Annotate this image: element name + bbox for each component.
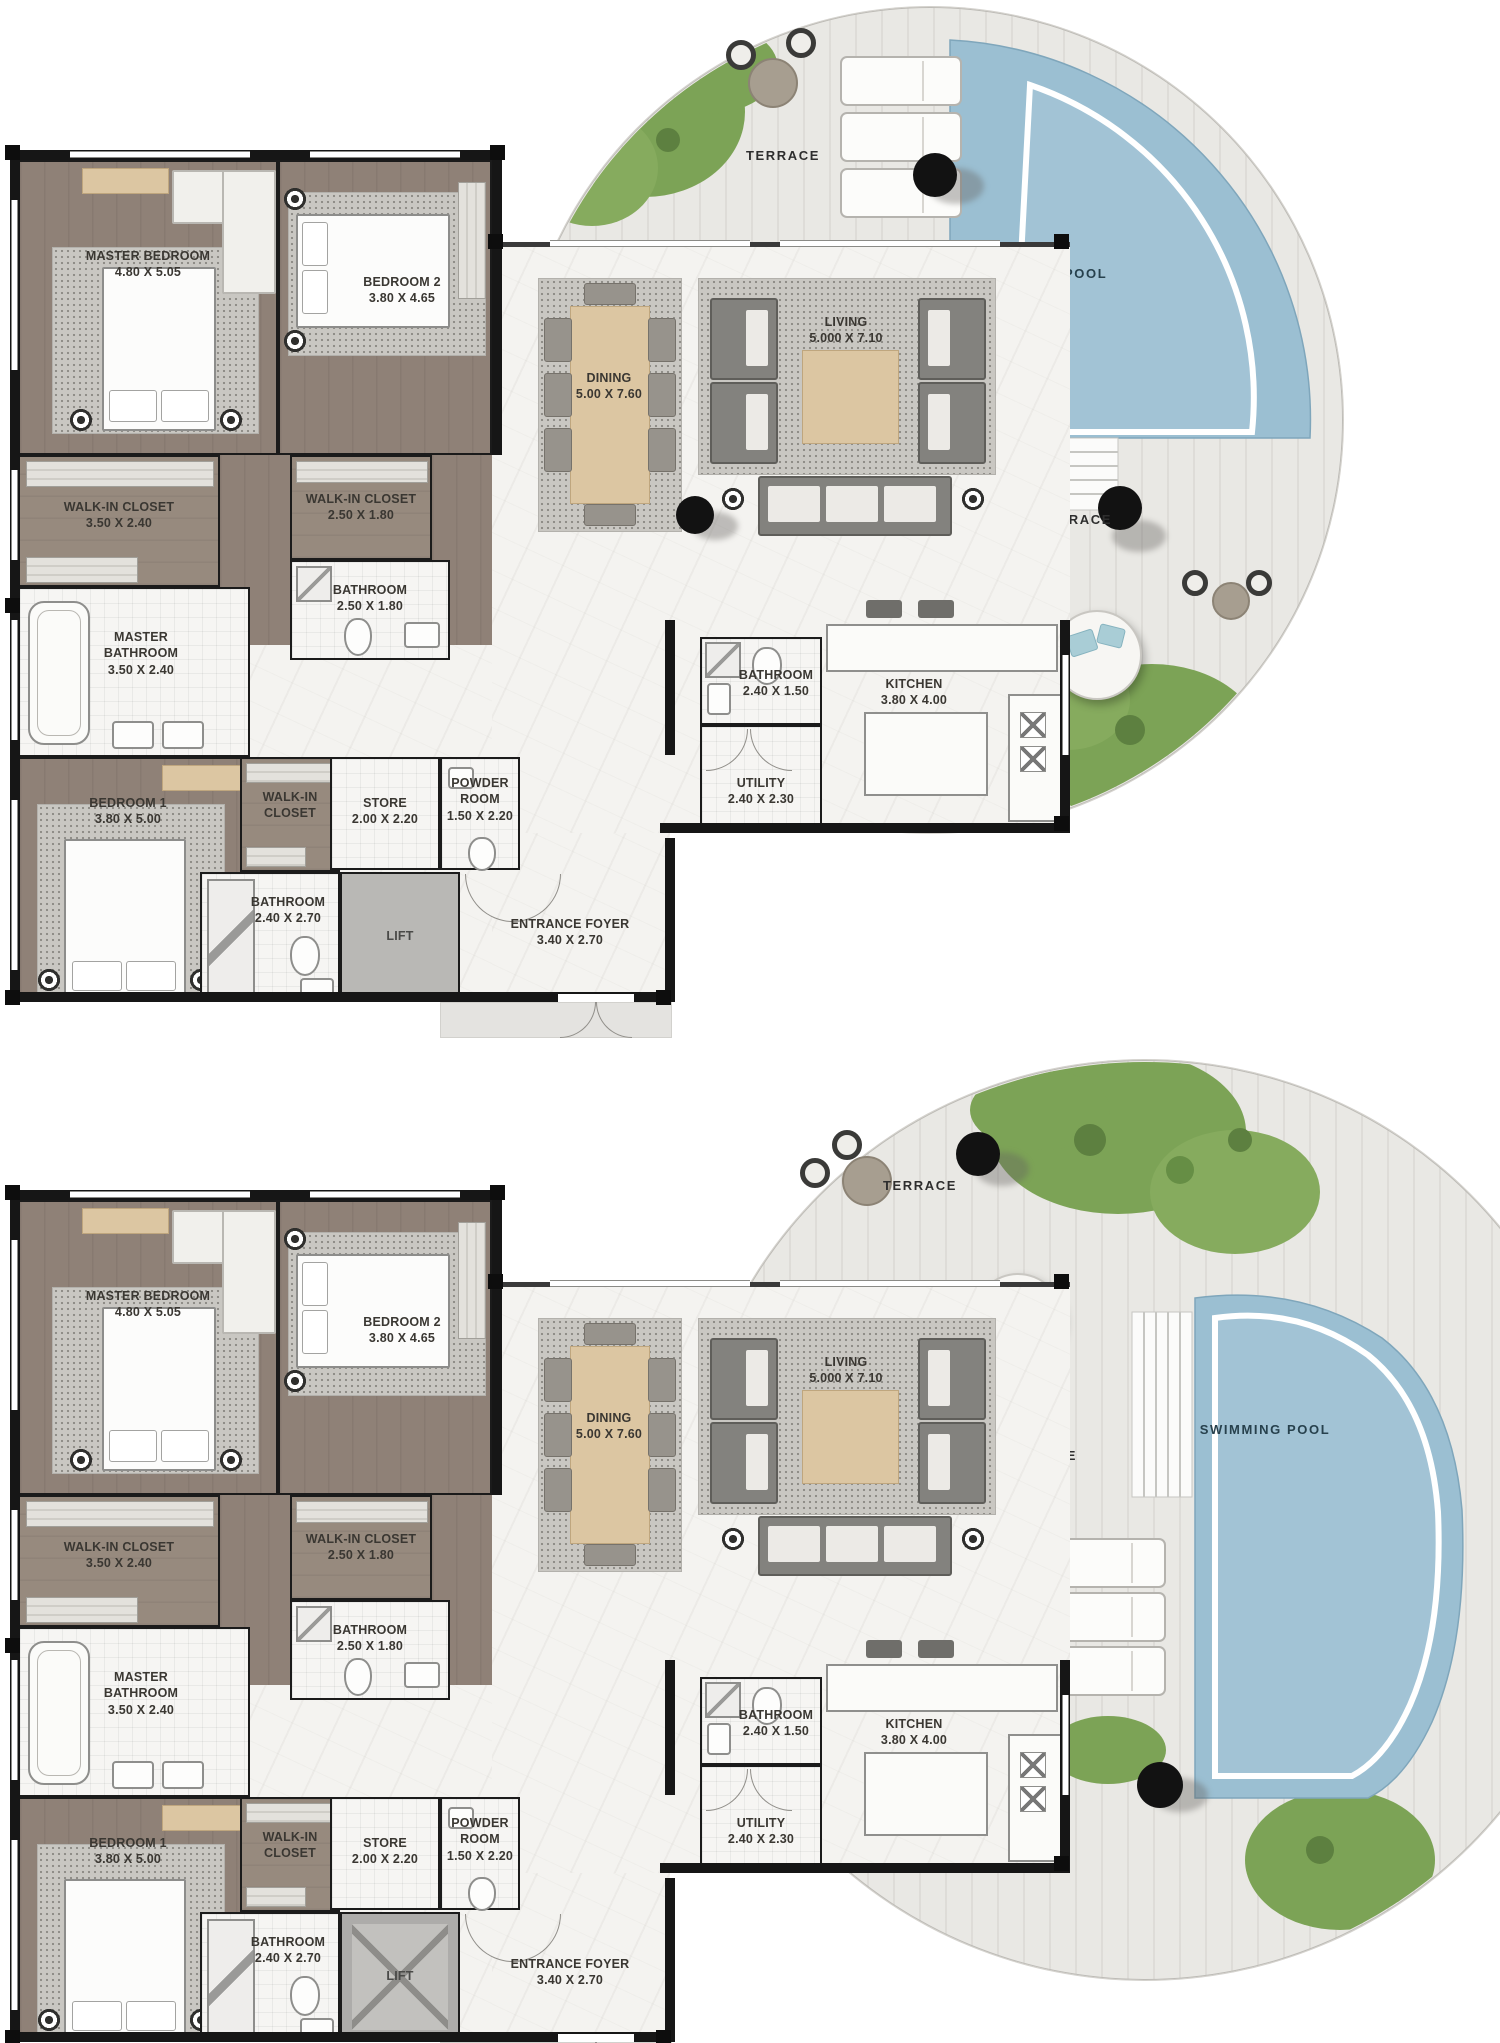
side-table (36, 967, 62, 993)
door-swing (465, 1914, 513, 1962)
room-label: BATHROOM 2.50 X 1.80 (294, 1622, 446, 1655)
bed-pillow (109, 390, 157, 422)
wall-jamb (1054, 816, 1069, 831)
side-table (720, 486, 746, 512)
room-name: ENTRANCE FOYER (478, 916, 662, 932)
room-dims: 3.50 X 2.40 (22, 1555, 216, 1571)
wall (660, 1863, 1070, 1873)
room-name: BATHROOM (240, 894, 336, 910)
room-name: DINING (540, 370, 678, 386)
room-name: WALK-IN CLOSET (294, 1531, 428, 1547)
door-swing (706, 729, 748, 771)
bar-stool (866, 600, 902, 618)
closet-shelf (26, 1597, 138, 1623)
side-table (68, 407, 94, 433)
kitchen-counter (826, 624, 1058, 672)
sink (404, 622, 440, 648)
room-label: BATHROOM 2.40 X 2.70 (240, 1934, 336, 1967)
window (780, 1280, 1000, 1287)
room-name: KITCHEN (824, 1716, 1004, 1732)
sink (112, 721, 154, 749)
room-name: UTILITY (704, 1815, 818, 1831)
pool-steps (1132, 1312, 1192, 1497)
dining-table (570, 306, 650, 504)
dining-chair (544, 1468, 572, 1512)
room-dims: 2.40 X 2.70 (240, 1950, 336, 1966)
lift-room: LIFT (340, 872, 460, 1002)
entrance-door-gap (558, 2034, 634, 2042)
room-dims: 3.80 X 4.65 (320, 1330, 484, 1346)
living-area: LIVING 5.000 X 7.10 (698, 270, 994, 540)
bar-stool (918, 1640, 954, 1658)
room-label: UTILITY 2.40 X 2.30 (704, 775, 818, 808)
wall (665, 620, 675, 755)
bathroom-1: BATHROOM 2.40 X 2.70 (200, 1912, 340, 2042)
room-dims: 2.40 X 1.50 (734, 1723, 818, 1739)
room-name: WALK-IN CLOSET (22, 1539, 216, 1555)
room-name: DINING (540, 1410, 678, 1426)
armchair (710, 382, 778, 464)
room-label: STORE 2.00 X 2.20 (334, 1835, 436, 1868)
window (70, 1191, 250, 1198)
window (1062, 655, 1069, 755)
room-label: POWDER ROOM 1.50 X 2.20 (444, 1815, 516, 1864)
room-name: LIFT (344, 1968, 456, 1984)
side-table (36, 2007, 62, 2033)
room-name: BATHROOM (240, 1934, 336, 1950)
room-name: MASTER BATHROOM (78, 1669, 204, 1702)
window (11, 1510, 18, 1600)
room-label: LIVING 5.000 X 7.10 (700, 314, 992, 347)
room-name: WALK-IN CLOSET (22, 499, 216, 515)
sink (404, 1662, 440, 1688)
planter-pot (676, 496, 714, 534)
room-name: ENTRANCE FOYER (478, 1956, 662, 1972)
wall-jamb (5, 1185, 20, 1200)
side-table (960, 1526, 986, 1552)
bed-pillow (302, 222, 328, 266)
closet-shelf (246, 763, 336, 783)
bathroom-3: BATHROOM 2.40 X 1.50 (700, 637, 822, 725)
closet-shelf (26, 1501, 214, 1527)
room-label: BATHROOM 2.40 X 2.70 (240, 894, 336, 927)
closet-shelf (296, 1501, 428, 1523)
walk-in-closet-master: WALK-IN CLOSET 3.50 X 2.40 (18, 1495, 220, 1627)
room-label: MASTER BATHROOM 3.50 X 2.40 (78, 1669, 204, 1718)
bar-stool (866, 1640, 902, 1658)
terrace-table (1212, 582, 1250, 620)
toilet (468, 837, 496, 871)
planter-pot (1137, 1762, 1183, 1808)
room-label: BATHROOM 2.40 X 1.50 (734, 1707, 818, 1740)
room-dims: 3.40 X 2.70 (478, 932, 662, 948)
room-name: BEDROOM 1 (26, 795, 230, 811)
room-dims: 4.80 X 5.05 (22, 264, 274, 280)
room-label: DINING 5.00 X 7.60 (540, 370, 678, 403)
room-label: WALK-IN CLOSET 3.50 X 2.40 (22, 1539, 216, 1572)
wall-jamb (656, 2030, 671, 2043)
toilet (290, 936, 320, 976)
bed-pillow (161, 390, 209, 422)
floor-plan-lower: TERRACE TERRACE SWIMMING POOL (0, 1050, 1500, 2043)
room-label: BATHROOM 2.50 X 1.80 (294, 582, 446, 615)
room-dims: 2.40 X 2.30 (704, 791, 818, 807)
room-label: WALK-IN CLOSET 2.50 X 1.80 (294, 1531, 428, 1564)
room-label: WALK-IN CLOSET 3.50 X 2.40 (22, 499, 216, 532)
walk-in-closet-2: WALK-IN CLOSET 2.50 X 1.80 (290, 1495, 432, 1600)
room-label: DINING 5.00 X 7.60 (540, 1410, 678, 1443)
closet-shelf (26, 557, 138, 583)
kitchen-island (864, 712, 988, 796)
door-swing (465, 874, 513, 922)
wall-jamb (490, 145, 505, 160)
bathroom-3: BATHROOM 2.40 X 1.50 (700, 1677, 822, 1765)
dining-chair (544, 428, 572, 472)
room-name: UTILITY (704, 775, 818, 791)
window (11, 470, 18, 560)
room-label: ENTRANCE FOYER 3.40 X 2.70 (478, 916, 662, 949)
room-name: POWDER ROOM (444, 775, 516, 808)
wall-jamb (5, 1638, 20, 1653)
window (70, 151, 250, 158)
powder-room: POWDER ROOM 1.50 X 2.20 (440, 1797, 520, 1910)
kitchen: KITCHEN 3.80 X 4.00 (822, 620, 1070, 825)
side-table (68, 1447, 94, 1473)
dining-chair (648, 1358, 676, 1402)
sink (112, 1761, 154, 1789)
closet-shelf (246, 1887, 306, 1907)
store-room: STORE 2.00 X 2.20 (330, 1797, 440, 1910)
room-dims: 2.00 X 2.20 (334, 811, 436, 827)
room-dims: 5.000 X 7.10 (700, 330, 992, 346)
dining-chair (584, 1544, 636, 1566)
room-label: LIFT (344, 1968, 456, 1984)
room-name: STORE (334, 1835, 436, 1851)
walk-in-closet-1: WALK-IN CLOSET (240, 757, 340, 872)
wall-jamb (490, 1185, 505, 1200)
room-name: LIVING (700, 1354, 992, 1370)
wall-jamb (1054, 1274, 1069, 1289)
room-dims: 2.50 X 1.80 (294, 507, 428, 523)
dining-chair (648, 428, 676, 472)
bed-pillow (72, 961, 122, 991)
wall (492, 1190, 502, 1495)
floorplan-sheet: TERRACE SWIMMING POOL TERRACE (0, 0, 1500, 2043)
window (1062, 1695, 1069, 1795)
door-swing (750, 1769, 792, 1811)
sun-lounger (1058, 1646, 1166, 1696)
sink (162, 721, 204, 749)
wall (660, 823, 1070, 833)
terrace-chair (1246, 570, 1272, 596)
room-dims: 2.50 X 1.80 (294, 1638, 446, 1654)
hob (1020, 746, 1046, 772)
side-table (218, 407, 244, 433)
window (780, 240, 1000, 247)
side-table (720, 1526, 746, 1552)
room-dims: 5.000 X 7.10 (700, 1370, 992, 1386)
swimming-pool-label: SWIMMING POOL (1180, 1422, 1350, 1437)
room-dims: 3.80 X 4.00 (824, 692, 1004, 708)
room-dims: 1.50 X 2.20 (444, 808, 516, 824)
room-label: UTILITY 2.40 X 2.30 (704, 1815, 818, 1848)
room-dims: 3.50 X 2.40 (22, 515, 216, 531)
room-name: BATHROOM (294, 1622, 446, 1638)
room-name: MASTER BATHROOM (78, 629, 204, 662)
window (11, 1840, 18, 2010)
side-table (218, 1447, 244, 1473)
powder-room: POWDER ROOM 1.50 X 2.20 (440, 757, 520, 870)
wall (665, 838, 675, 1002)
room-label: POWDER ROOM 1.50 X 2.20 (444, 775, 516, 824)
room-label: BATHROOM 2.40 X 1.50 (734, 667, 818, 700)
room-name: BATHROOM (734, 1707, 818, 1723)
sun-lounger (840, 56, 962, 106)
room-dims: 3.50 X 2.40 (78, 1702, 204, 1718)
dining-area: DINING 5.00 X 7.60 (538, 1318, 680, 1570)
wall-jamb (5, 990, 20, 1005)
bedroom-bench (82, 1208, 169, 1234)
floor-plan-upper: TERRACE SWIMMING POOL TERRACE (0, 0, 1500, 1015)
wall-jamb (5, 2030, 20, 2043)
bed-pillow (109, 1430, 157, 1462)
planter-pot (956, 1132, 1000, 1176)
walk-in-closet-2: WALK-IN CLOSET 2.50 X 1.80 (290, 455, 432, 560)
dining-chair (584, 283, 636, 305)
window (310, 1191, 460, 1198)
armchair (918, 382, 986, 464)
dining-chair (584, 504, 636, 526)
bed-pillow (72, 2001, 122, 2031)
room-name: STORE (334, 795, 436, 811)
closet-shelf (246, 1803, 336, 1823)
room-dims: 3.40 X 2.70 (478, 1972, 662, 1988)
sofa (758, 476, 952, 536)
utility-room: UTILITY 2.40 X 2.30 (700, 725, 822, 825)
room-name: WALK-IN CLOSET (244, 789, 336, 822)
dining-chair (584, 1323, 636, 1345)
bedroom-2: BEDROOM 2 3.80 X 4.65 (278, 1200, 492, 1495)
room-label: STORE 2.00 X 2.20 (334, 795, 436, 828)
room-dims: 2.00 X 2.20 (334, 1851, 436, 1867)
window (550, 1280, 750, 1287)
room-label: ENTRANCE FOYER 3.40 X 2.70 (478, 1956, 662, 1989)
wall-jamb (656, 990, 671, 1005)
room-name: LIVING (700, 314, 992, 330)
dining-chair (648, 1468, 676, 1512)
hob (1020, 1752, 1046, 1778)
armchair (918, 1422, 986, 1504)
living-area: LIVING 5.000 X 7.10 (698, 1310, 994, 1580)
window (11, 1240, 18, 1410)
bathroom-2: BATHROOM 2.50 X 1.80 (290, 560, 450, 660)
bedroom-2: BEDROOM 2 3.80 X 4.65 (278, 160, 492, 455)
closet-shelf (246, 847, 306, 867)
room-dims: 4.80 X 5.05 (22, 1304, 274, 1320)
coffee-table (802, 1390, 899, 1484)
room-label: WALK-IN CLOSET (244, 789, 336, 822)
master-bathroom: MASTER BATHROOM 3.50 X 2.40 (18, 587, 250, 757)
room-name: BATHROOM (294, 582, 446, 598)
bedroom-bench (82, 168, 169, 194)
dining-chair (544, 318, 572, 362)
window (310, 151, 460, 158)
wall (665, 1878, 675, 2042)
room-dims: 1.50 X 2.20 (444, 1848, 516, 1864)
terrace-table (748, 58, 798, 108)
toilet (344, 618, 372, 656)
entrance-door-gap (558, 994, 634, 1002)
sun-lounger (1058, 1538, 1166, 1588)
master-bedroom: MASTER BEDROOM 4.80 X 5.05 (18, 1200, 278, 1495)
room-dims: 2.50 X 1.80 (294, 1547, 428, 1563)
wall-jamb (488, 234, 503, 249)
kitchen-island (864, 1752, 988, 1836)
sofa (758, 1516, 952, 1576)
walk-in-closet-1: WALK-IN CLOSET (240, 1797, 340, 1912)
room-dims: 5.00 X 7.60 (540, 1426, 678, 1442)
dining-chair (648, 318, 676, 362)
dining-area: DINING 5.00 X 7.60 (538, 278, 680, 530)
bed-pillow (126, 961, 176, 991)
sun-lounger (1058, 1592, 1166, 1642)
wall (492, 150, 502, 455)
door-swing (706, 1769, 748, 1811)
room-label: MASTER BEDROOM 4.80 X 5.05 (22, 248, 274, 281)
side-table (282, 1368, 308, 1394)
apartment-unit: MASTER BEDROOM 4.80 X 5.05 BEDROOM 2 3.8… (10, 150, 1070, 1010)
bed-pillow (161, 1430, 209, 1462)
room-label: LIVING 5.000 X 7.10 (700, 1354, 992, 1387)
room-dims: 2.40 X 2.30 (704, 1831, 818, 1847)
sink (707, 683, 731, 715)
walk-in-closet-master: WALK-IN CLOSET 3.50 X 2.40 (18, 455, 220, 587)
kitchen: KITCHEN 3.80 X 4.00 (822, 1660, 1070, 1865)
grass-patch (1245, 1790, 1435, 1930)
window (550, 240, 750, 247)
terrace-chair (786, 28, 816, 58)
room-label: BEDROOM 2 3.80 X 4.65 (320, 274, 484, 307)
room-label: MASTER BATHROOM 3.50 X 2.40 (78, 629, 204, 678)
wall-jamb (5, 598, 20, 613)
entrance-foyer: ENTRANCE FOYER 3.40 X 2.70 (460, 872, 670, 1002)
dining-chair (544, 1358, 572, 1402)
coffee-table (802, 350, 899, 444)
room-name: POWDER ROOM (444, 1815, 516, 1848)
bar-stool (918, 600, 954, 618)
room-dims: 5.00 X 7.60 (540, 386, 678, 402)
bed-pillow (126, 2001, 176, 2031)
store-room: STORE 2.00 X 2.20 (330, 757, 440, 870)
door-swing (513, 874, 561, 922)
room-dims: 3.80 X 4.00 (824, 1732, 1004, 1748)
window (11, 620, 18, 740)
room-name: WALK-IN CLOSET (294, 491, 428, 507)
side-table (960, 486, 986, 512)
terrace-chair (726, 40, 756, 70)
room-dims: 2.40 X 1.50 (734, 683, 818, 699)
kitchen-counter (826, 1664, 1058, 1712)
terrace-chair (1182, 570, 1208, 596)
room-label: WALK-IN CLOSET (244, 1829, 336, 1862)
closet-shelf (26, 461, 214, 487)
room-label: BEDROOM 1 3.80 X 5.00 (26, 1835, 230, 1868)
room-dims: 3.50 X 2.40 (78, 662, 204, 678)
sink (707, 1723, 731, 1755)
room-dims: 3.80 X 5.00 (26, 1851, 230, 1867)
room-name: BEDROOM 1 (26, 1835, 230, 1851)
window (11, 800, 18, 970)
dining-table (570, 1346, 650, 1544)
side-table (282, 328, 308, 354)
window (11, 200, 18, 370)
master-bathroom: MASTER BATHROOM 3.50 X 2.40 (18, 1627, 250, 1797)
wall (665, 1660, 675, 1795)
wall-jamb (1054, 234, 1069, 249)
room-label: KITCHEN 3.80 X 4.00 (824, 1716, 1004, 1749)
bed-pillow (302, 1262, 328, 1306)
closet-shelf (296, 461, 428, 483)
room-label: BEDROOM 2 3.80 X 4.65 (320, 1314, 484, 1347)
room-label: WALK-IN CLOSET 2.50 X 1.80 (294, 491, 428, 524)
master-bedroom: MASTER BEDROOM 4.80 X 5.05 (18, 160, 278, 455)
entry-step (440, 1002, 672, 1038)
side-table (282, 1226, 308, 1252)
wall-jamb (5, 145, 20, 160)
room-label: BEDROOM 1 3.80 X 5.00 (26, 795, 230, 828)
door-swing (513, 1914, 561, 1962)
sink (162, 1761, 204, 1789)
window (11, 1660, 18, 1780)
room-name: KITCHEN (824, 676, 1004, 692)
hob (1020, 1786, 1046, 1812)
utility-room: UTILITY 2.40 X 2.30 (700, 1765, 822, 1865)
wall-jamb (488, 1274, 503, 1289)
room-label: MASTER BEDROOM 4.80 X 5.05 (22, 1288, 274, 1321)
room-label: KITCHEN 3.80 X 4.00 (824, 676, 1004, 709)
room-name: BATHROOM (734, 667, 818, 683)
lift-room: LIFT (340, 1912, 460, 2042)
hob (1020, 712, 1046, 738)
entrance-foyer: ENTRANCE FOYER 3.40 X 2.70 (460, 1912, 670, 2042)
terrace-chair (832, 1130, 862, 1160)
room-name: BEDROOM 2 (320, 1314, 484, 1330)
room-dims: 3.80 X 4.65 (320, 290, 484, 306)
room-dims: 2.40 X 2.70 (240, 910, 336, 926)
side-table (282, 186, 308, 212)
room-name: MASTER BEDROOM (22, 1288, 274, 1304)
room-name: BEDROOM 2 (320, 274, 484, 290)
room-name: MASTER BEDROOM (22, 248, 274, 264)
armchair (710, 1422, 778, 1504)
apartment-unit: MASTER BEDROOM 4.80 X 5.05 BEDROOM 2 3.8… (10, 1190, 1070, 2043)
room-dims: 3.80 X 5.00 (26, 811, 230, 827)
door-swing (750, 729, 792, 771)
terrace-chair (800, 1158, 830, 1188)
room-name: WALK-IN CLOSET (244, 1829, 336, 1862)
toilet (344, 1658, 372, 1696)
bathroom-2: BATHROOM 2.50 X 1.80 (290, 1600, 450, 1700)
wall-jamb (1054, 1856, 1069, 1871)
room-label: LIFT (344, 928, 456, 944)
room-name: LIFT (344, 928, 456, 944)
toilet (290, 1976, 320, 2016)
room-dims: 2.50 X 1.80 (294, 598, 446, 614)
bathroom-1: BATHROOM 2.40 X 2.70 (200, 872, 340, 1002)
toilet (468, 1877, 496, 1911)
